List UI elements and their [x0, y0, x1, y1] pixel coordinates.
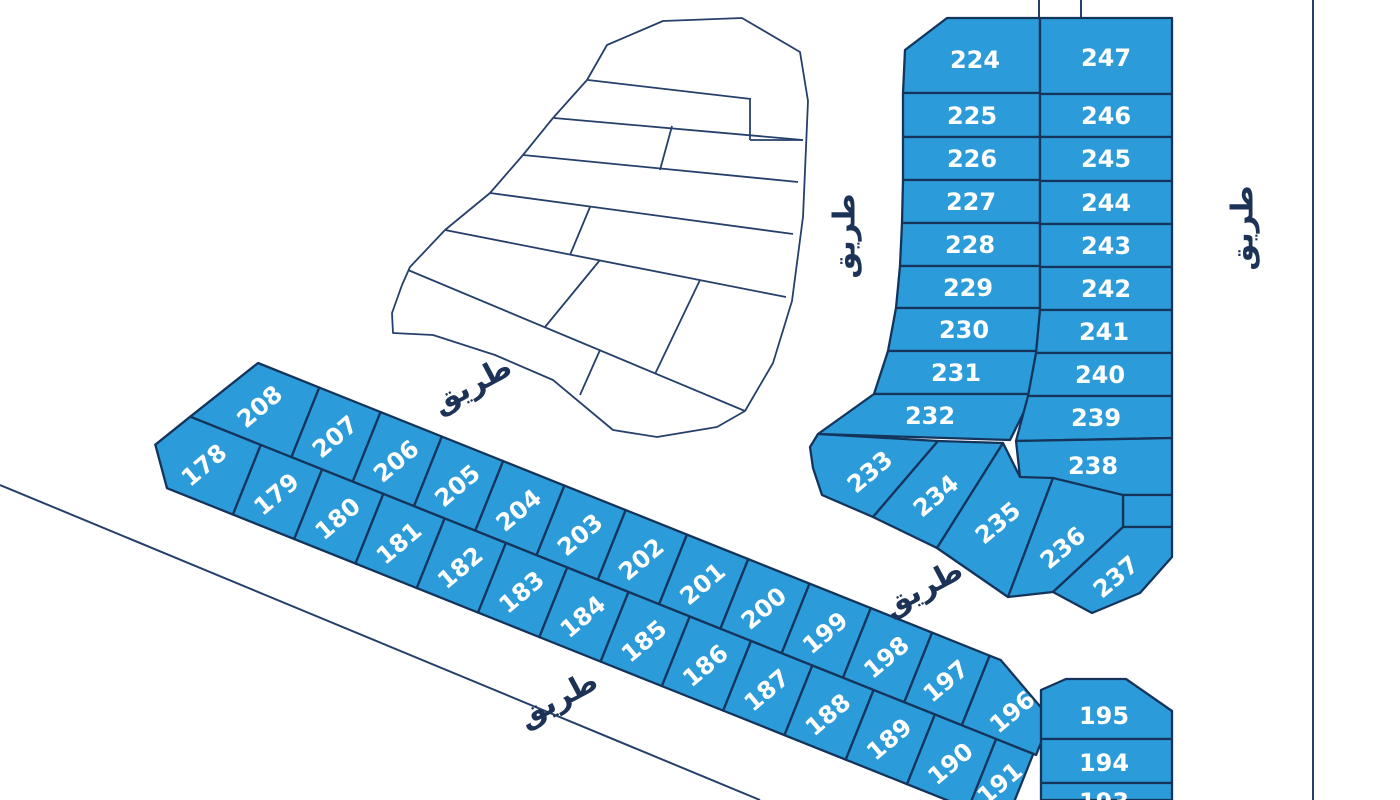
parcel-label-241: 241	[1079, 318, 1129, 346]
road-label-3: طريق	[426, 350, 518, 421]
parcel-label-224: 224	[950, 46, 1000, 74]
parcel-label-228: 228	[945, 231, 995, 259]
parcel-label-232: 232	[905, 402, 955, 430]
parcel-label-239: 239	[1071, 404, 1121, 432]
parcel-label-193: 193	[1079, 788, 1129, 800]
parcel-label-229: 229	[943, 274, 993, 302]
parcel-label-243: 243	[1081, 232, 1131, 260]
road-label-4: طريق	[512, 664, 604, 735]
parcel-label-194: 194	[1079, 749, 1129, 777]
parcel-label-226: 226	[947, 145, 997, 173]
parcel-label-244: 244	[1081, 189, 1131, 217]
subdivision-map: 2082072062052042032022012001991981971961…	[0, 0, 1400, 800]
parcel-label-231: 231	[931, 359, 981, 387]
parcel-label-247: 247	[1081, 44, 1131, 72]
parcel-label-225: 225	[947, 102, 997, 130]
map-canvas: 2082072062052042032022012001991981971961…	[0, 0, 1400, 800]
parcel-label-227: 227	[946, 188, 996, 216]
road-label-5: طريق	[877, 553, 969, 624]
parcel-label-240: 240	[1075, 361, 1125, 389]
parcel-label-242: 242	[1081, 275, 1131, 303]
parcel-label-195: 195	[1079, 702, 1129, 730]
road-label-1: طريق	[828, 193, 863, 278]
parcel-unnumbered[interactable]	[1123, 495, 1172, 527]
parcel-label-246: 246	[1081, 102, 1131, 130]
parcel-label-238: 238	[1068, 452, 1118, 480]
parcel-label-245: 245	[1081, 145, 1131, 173]
road-label-2: طريق	[1226, 185, 1261, 270]
parcel-label-230: 230	[939, 316, 989, 344]
